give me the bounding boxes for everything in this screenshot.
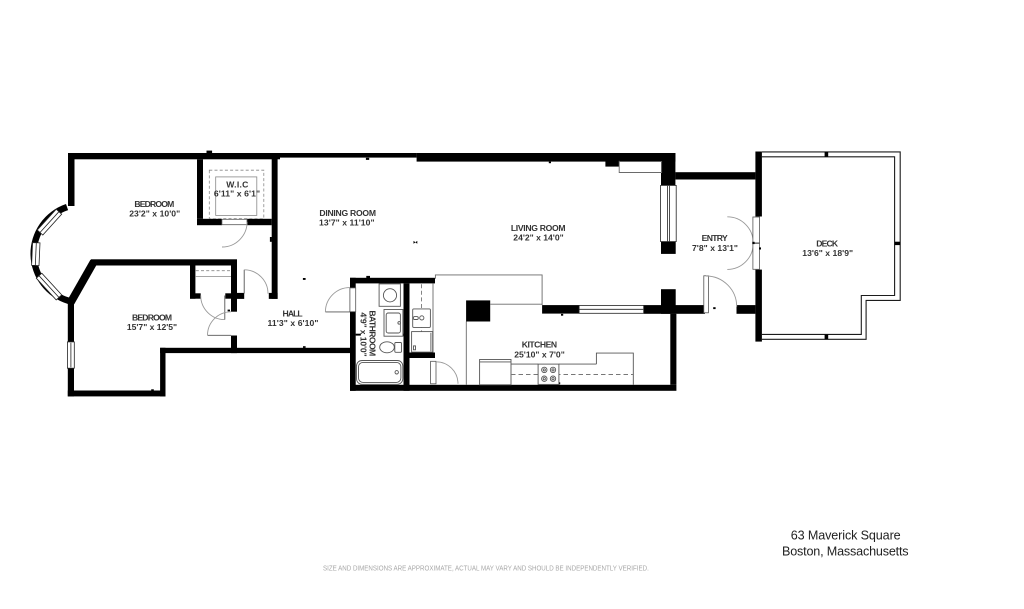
svg-text:LIVING ROOM: LIVING ROOM — [511, 223, 566, 233]
svg-text:SIZE AND DIMENSIONS ARE APPROX: SIZE AND DIMENSIONS ARE APPROXIMATE, ACT… — [323, 565, 649, 572]
svg-text:DINING ROOM: DINING ROOM — [319, 208, 376, 218]
svg-text:25'10" x 7'0": 25'10" x 7'0" — [514, 350, 565, 360]
svg-text:7'8" x 13'1": 7'8" x 13'1" — [692, 243, 738, 253]
svg-text:BEDROOM: BEDROOM — [132, 312, 172, 322]
svg-text:24'2" x 14'0": 24'2" x 14'0" — [513, 233, 563, 243]
svg-text:13'7" x 11'10": 13'7" x 11'10" — [319, 218, 375, 228]
svg-text:Boston, Massachusetts: Boston, Massachusetts — [782, 545, 909, 559]
svg-text:63 Maverick Square: 63 Maverick Square — [791, 529, 901, 543]
svg-text:4'9" x 10'0": 4'9" x 10'0" — [359, 312, 369, 356]
svg-text:15'7" x 12'5": 15'7" x 12'5" — [127, 322, 177, 332]
svg-text:23'2" x 10'0": 23'2" x 10'0" — [129, 209, 180, 219]
svg-text:KITCHEN: KITCHEN — [522, 339, 557, 349]
svg-text:ENTRY: ENTRY — [702, 233, 728, 243]
svg-text:13'6" x 18'9": 13'6" x 18'9" — [802, 248, 853, 258]
svg-text:BEDROOM: BEDROOM — [134, 199, 174, 209]
svg-text:11'3" x 6'10": 11'3" x 6'10" — [268, 318, 319, 328]
svg-text:6'11" x 6'1": 6'11" x 6'1" — [214, 189, 260, 199]
svg-text:DECK: DECK — [816, 238, 839, 248]
